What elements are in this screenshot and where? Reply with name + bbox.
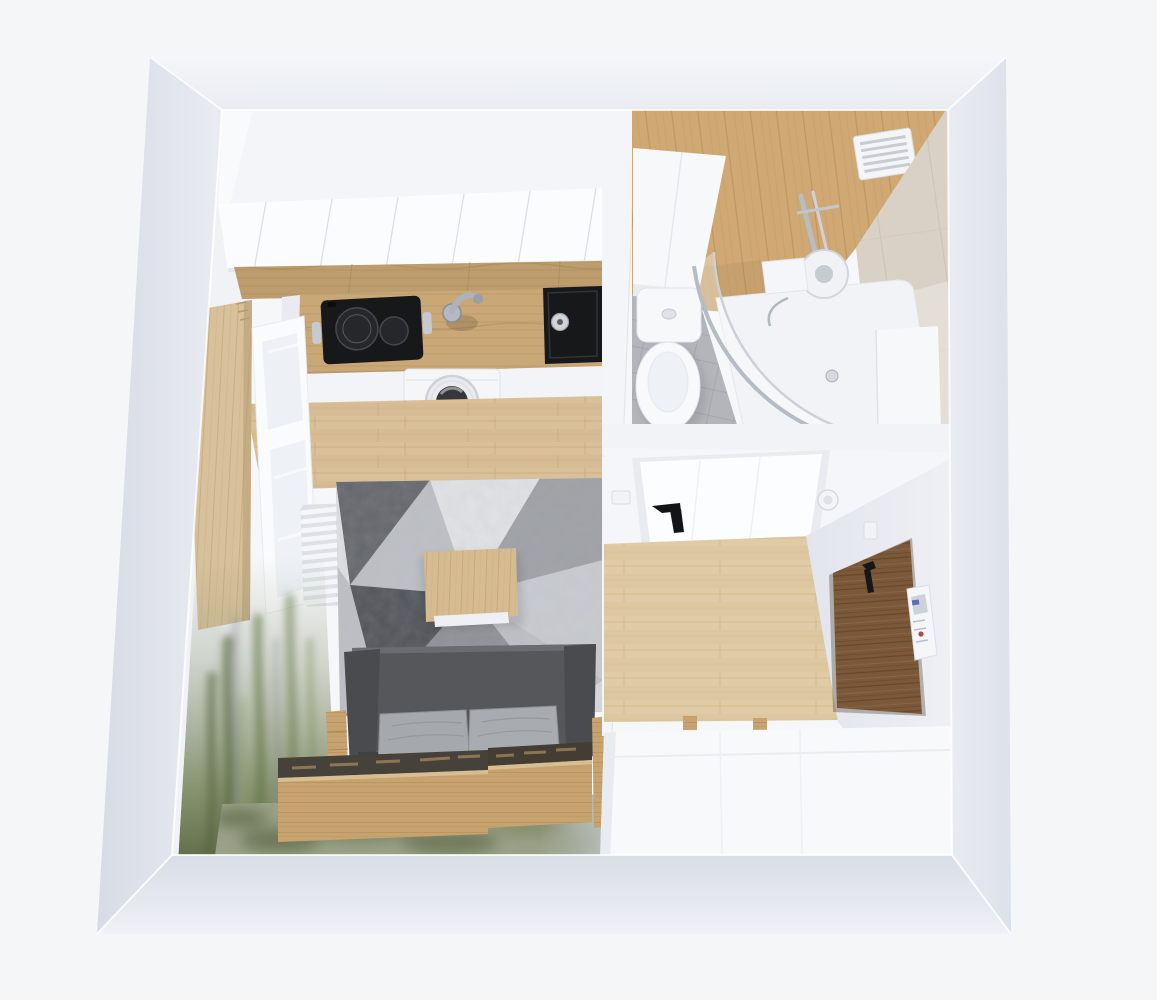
hallway-zone: [600, 448, 952, 860]
hall-wood-floor: [604, 536, 838, 722]
light-switch: [612, 491, 630, 504]
toilet-seat: [648, 352, 688, 412]
north-wall-top: [150, 57, 1006, 110]
cooktop-burner-small: [379, 316, 408, 345]
south-wall-outer: [97, 855, 1011, 934]
white-cabinet: [876, 326, 941, 430]
floorplan-render: [0, 0, 1157, 1000]
intercom-blue-button: [912, 599, 920, 605]
table-top: [424, 548, 518, 622]
sink-drain-center: [557, 319, 563, 325]
wood-coffee-table: [420, 548, 524, 630]
wood-storage-drawer-left: [278, 750, 488, 842]
cooktop-handle-left: [312, 322, 322, 344]
drawer-right-front: [488, 760, 592, 828]
black-sink: [543, 286, 602, 364]
sofa-arm-left: [344, 649, 380, 766]
smoke-detector-center: [824, 496, 833, 505]
cooktop-handle-right: [422, 312, 432, 334]
bathroom-door-panel: [640, 454, 822, 542]
shower-shelf: [762, 258, 808, 294]
toilet-flush-button: [662, 309, 676, 319]
wardrobe-body: [600, 726, 952, 860]
east-wall-outer: [948, 57, 1011, 934]
cooktop-control: [327, 302, 335, 307]
induction-cooktop: [310, 295, 433, 365]
faucet-head: [473, 294, 483, 304]
intercom-red-button: [918, 631, 923, 636]
built-in-wardrobe: [600, 726, 952, 860]
wood-storage-drawer-right: [488, 742, 592, 828]
shower-drain: [826, 370, 838, 382]
bathroom-zone: [632, 110, 952, 438]
floorplan-svg: [0, 0, 1157, 1000]
toilet: [636, 288, 706, 438]
shower-head-center: [815, 265, 833, 283]
entrance-light-switch: [864, 522, 877, 539]
bathroom-door: [632, 450, 830, 548]
wardrobe-wood-hinge-1: [683, 716, 697, 730]
